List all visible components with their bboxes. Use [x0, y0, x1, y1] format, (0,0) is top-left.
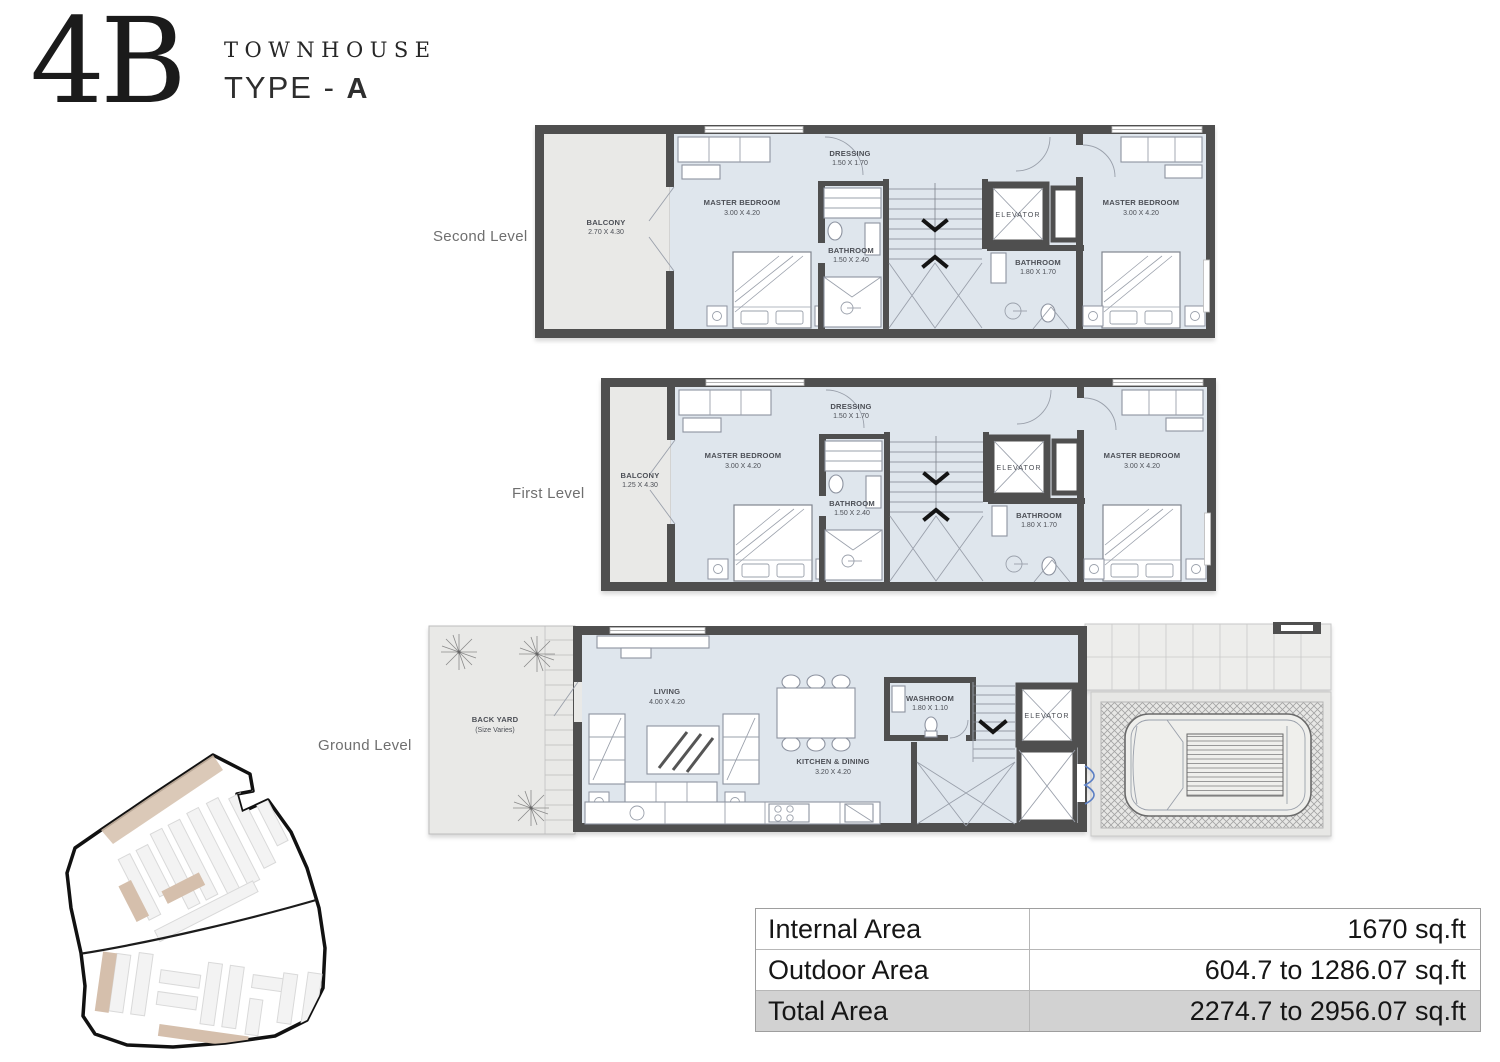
- total-area-value: 2274.7 to 2956.07 sq.ft: [1030, 996, 1480, 1027]
- svg-text:4.00 X 4.20: 4.00 X 4.20: [649, 699, 685, 706]
- room-label-living: LIVING: [654, 687, 681, 696]
- table-row-outdoor-area: Outdoor Area 604.7 to 1286.07 sq.ft: [756, 949, 1480, 990]
- driveway: [1091, 692, 1331, 836]
- room-label-master-bedroom-right: MASTER BEDROOM: [1104, 451, 1181, 460]
- svg-text:3.00 X 4.20: 3.00 X 4.20: [725, 463, 761, 470]
- room-label-master-bedroom-right: MASTER BEDROOM: [1103, 198, 1180, 207]
- svg-text:1.80 X 1.70: 1.80 X 1.70: [1020, 269, 1056, 276]
- total-area-label: Total Area: [756, 991, 1030, 1031]
- room-label-bathroom-left: BATHROOM: [829, 499, 875, 508]
- room-label-elevator: ELEVATOR: [996, 463, 1041, 472]
- room-label-balcony: BALCONY: [621, 471, 660, 480]
- car-top-view: [1125, 714, 1311, 816]
- back-yard: BACK YARD (Size Varies): [429, 626, 575, 834]
- svg-text:3.20 X 4.20: 3.20 X 4.20: [815, 769, 851, 776]
- svg-text:1.25 X 4.30: 1.25 X 4.30: [622, 482, 658, 489]
- table-row-total-area: Total Area 2274.7 to 2956.07 sq.ft: [756, 990, 1480, 1031]
- svg-text:1.50 X 2.40: 1.50 X 2.40: [834, 510, 870, 517]
- internal-area-label: Internal Area: [756, 909, 1030, 949]
- outdoor-area-value: 604.7 to 1286.07 sq.ft: [1030, 955, 1480, 986]
- elevator: ELEVATOR: [1019, 686, 1075, 822]
- room-label-master-bedroom-left: MASTER BEDROOM: [704, 198, 781, 207]
- svg-text:1.50 X 1.70: 1.50 X 1.70: [833, 413, 869, 420]
- svg-text:1.50 X 2.40: 1.50 X 2.40: [833, 257, 869, 264]
- svg-text:(Size Varies): (Size Varies): [475, 727, 515, 734]
- svg-text:1.80 X 1.10: 1.80 X 1.10: [912, 705, 948, 712]
- room-label-elevator: ELEVATOR: [1024, 711, 1069, 720]
- svg-text:3.00 X 4.20: 3.00 X 4.20: [1124, 463, 1160, 470]
- svg-text:2.70 X 4.30: 2.70 X 4.30: [588, 229, 624, 236]
- room-label-backyard: BACK YARD: [472, 715, 519, 724]
- table-row-internal-area: Internal Area 1670 sq.ft: [756, 909, 1480, 949]
- svg-text:1.80 X 1.70: 1.80 X 1.70: [1021, 522, 1057, 529]
- svg-text:1.50 X 1.70: 1.50 X 1.70: [832, 160, 868, 167]
- room-label-dressing: DRESSING: [830, 402, 871, 411]
- room-label-elevator: ELEVATOR: [995, 210, 1040, 219]
- site-plan: [55, 748, 365, 1050]
- logo-type-letter: A: [347, 73, 370, 105]
- logo-townhouse: TOWNHOUSE: [224, 38, 437, 62]
- ground-level-floor-plan: BACK YARD (Size Varies) LIVING 4.00 X 4.…: [425, 622, 1333, 838]
- first-level-caption: First Level: [512, 485, 585, 502]
- room-label-bathroom-right: BATHROOM: [1016, 511, 1062, 520]
- second-level-caption: Second Level: [433, 228, 528, 245]
- second-level-floor-plan: BALCONY 2.70 X 4.30 MASTER BEDROOM 3.00 …: [535, 125, 1215, 338]
- room-label-dressing: DRESSING: [829, 149, 870, 158]
- internal-area-value: 1670 sq.ft: [1030, 914, 1480, 945]
- outdoor-area-label: Outdoor Area: [756, 950, 1030, 990]
- svg-text:3.00 X 4.20: 3.00 X 4.20: [1123, 210, 1159, 217]
- room-label-balcony: BALCONY: [587, 218, 626, 227]
- washroom: WASHROOM 1.80 X 1.10: [887, 680, 973, 741]
- room-label-bathroom-left: BATHROOM: [828, 246, 874, 255]
- svg-text:3.00 X 4.20: 3.00 X 4.20: [724, 210, 760, 217]
- first-level-floor-plan: BALCONY 1.25 X 4.30 MASTER BEDROOM 3.00 …: [601, 378, 1216, 591]
- room-label-washroom: WASHROOM: [906, 694, 954, 703]
- logo-text-block: TOWNHOUSE TYPE - A: [224, 38, 437, 106]
- logo-type: TYPE - A: [224, 70, 437, 106]
- logo-type-prefix: TYPE -: [224, 70, 347, 105]
- logo-4b: 4B: [30, 2, 182, 120]
- room-label-master-bedroom-left: MASTER BEDROOM: [705, 451, 782, 460]
- room-label-bathroom-right: BATHROOM: [1015, 258, 1061, 267]
- area-table: Internal Area 1670 sq.ft Outdoor Area 60…: [755, 908, 1481, 1032]
- room-label-kitchen-dining: KITCHEN & DINING: [796, 757, 869, 766]
